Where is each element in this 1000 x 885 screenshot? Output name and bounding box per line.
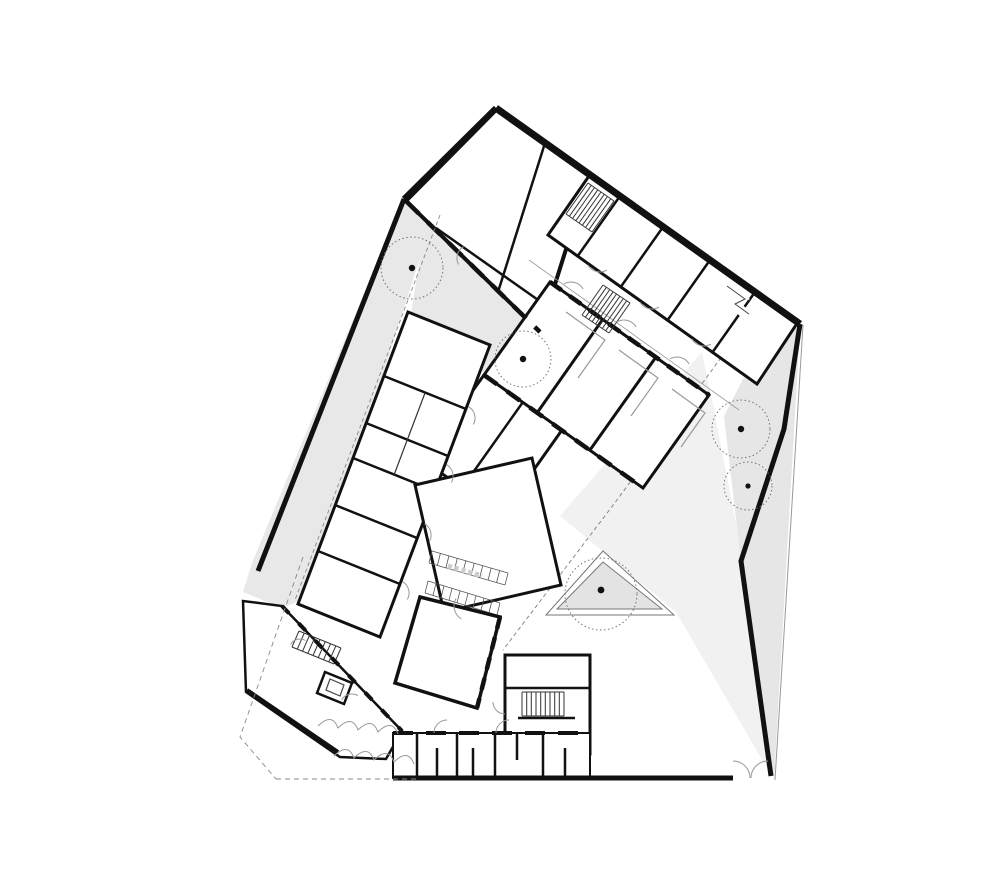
tree-trunk — [745, 483, 750, 488]
floor-plan-drawing — [0, 0, 1000, 885]
door-swing — [617, 320, 636, 327]
hall — [395, 597, 500, 708]
floor-plan-page — [0, 0, 1000, 885]
annex-south-row — [393, 733, 590, 778]
stair-tread — [497, 603, 500, 615]
door-swing — [493, 702, 505, 714]
entry-double-door-left — [733, 761, 750, 778]
tree-trunk — [520, 356, 526, 362]
stair-tread — [425, 581, 428, 593]
door-swing — [403, 582, 410, 600]
sanitary-block — [415, 458, 561, 612]
tree-trunk — [738, 426, 744, 432]
stair-tread — [433, 583, 436, 595]
tree-trunk — [598, 587, 605, 594]
tree-trunk — [409, 265, 415, 271]
door-swing — [564, 282, 583, 289]
